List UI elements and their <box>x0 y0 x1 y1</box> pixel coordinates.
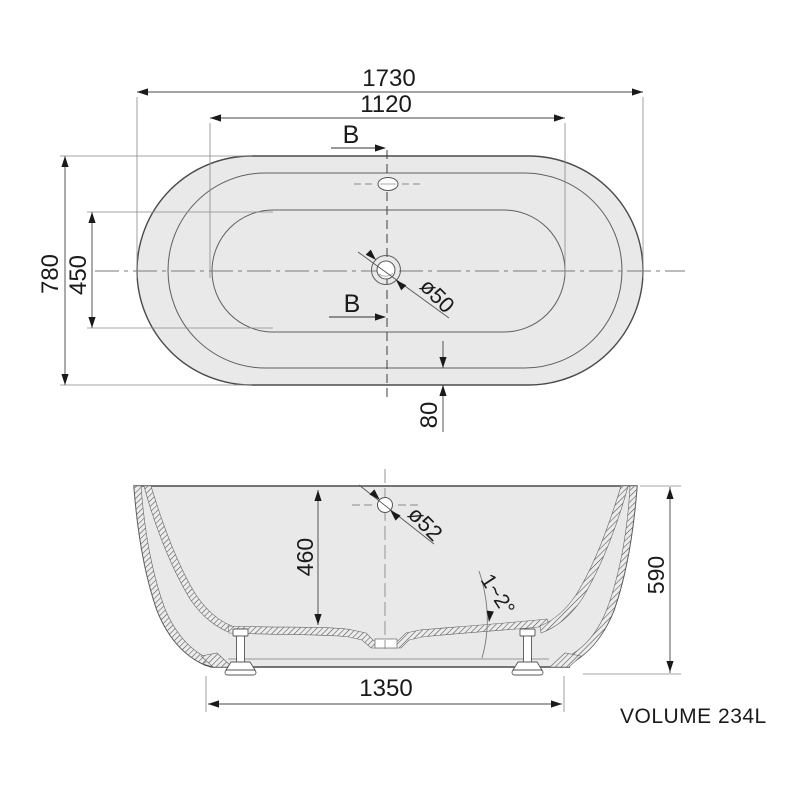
arrowhead <box>210 114 221 121</box>
arrowhead <box>632 88 643 95</box>
dim-label-overall-width: 780 <box>38 234 64 314</box>
volume-label: VOLUME 234L <box>620 704 790 730</box>
arrowhead <box>554 114 565 121</box>
dim-label-edge-offset: 80 <box>417 390 443 440</box>
dim-label-overall-height: 590 <box>643 540 669 610</box>
arrowhead <box>61 156 68 167</box>
arrowhead <box>208 700 219 707</box>
arrowhead <box>666 661 673 672</box>
arrowhead <box>88 212 95 223</box>
arrowhead <box>61 374 68 385</box>
section-marker-bottom: B <box>340 291 364 317</box>
arrowhead <box>88 317 95 328</box>
arrowhead <box>551 700 562 707</box>
arrowhead <box>375 144 386 151</box>
dim-label-basin-length: 1120 <box>336 92 436 118</box>
dim-label-overall-length: 1730 <box>339 66 439 92</box>
drain-fitting <box>375 639 397 648</box>
dim-label-base-length: 1350 <box>336 676 436 702</box>
dim-label-inner-depth: 460 <box>292 522 318 592</box>
dim-label-basin-width: 450 <box>66 235 92 315</box>
top-view <box>60 88 685 432</box>
bathtub-technical-drawing: 1730 1120 B B 780 450 ø50 80 460 ø52 1~2… <box>0 0 800 800</box>
arrowhead <box>137 88 148 95</box>
section-marker-top: B <box>339 122 363 148</box>
arrowhead <box>666 488 673 499</box>
